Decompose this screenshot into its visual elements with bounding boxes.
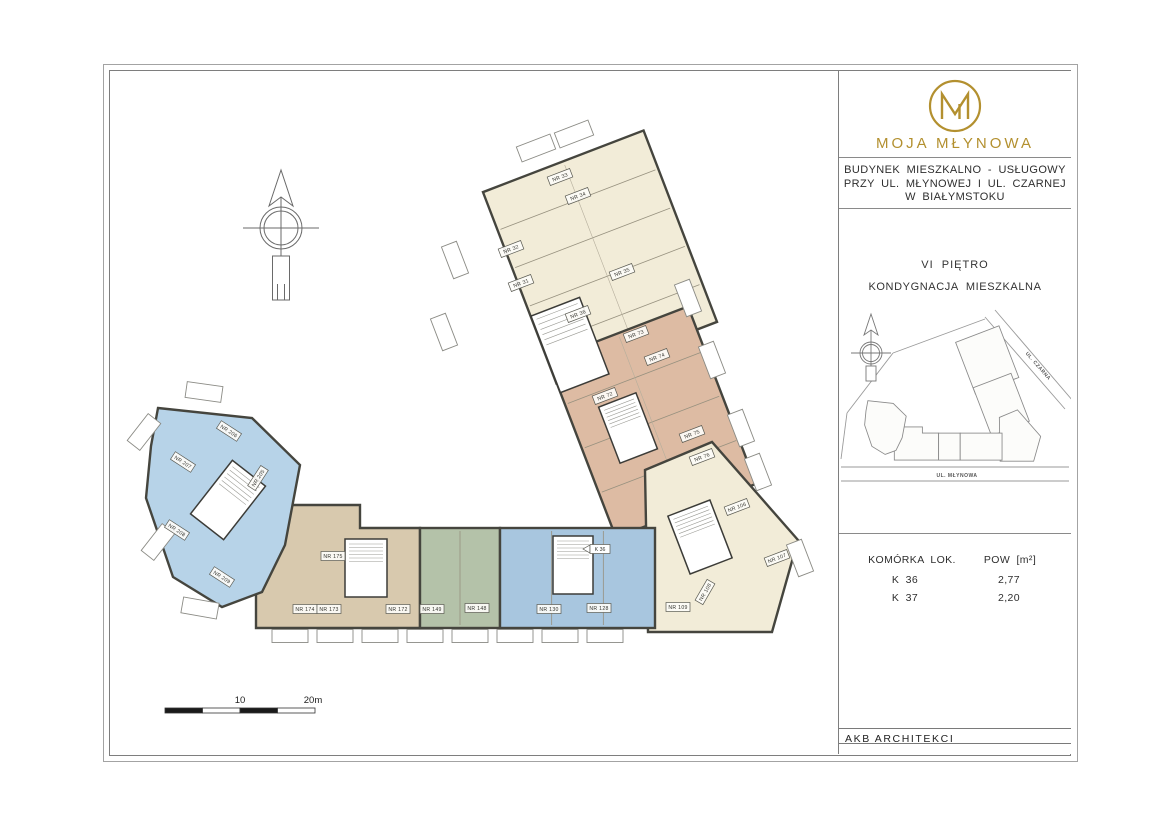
site-building-footprint xyxy=(865,326,1041,461)
project-title-line2: PRZY UL. MŁYNOWEJ I UL. CZARNEJ xyxy=(839,178,1071,192)
site-north-arrow xyxy=(851,314,891,381)
drawing-sheet: NR 33NR 34NR 32NR 31NR 35NR 36NR 73NR 74… xyxy=(0,0,1170,826)
storage-table-section: KOMÓRKA LOK. POW [m²] K 36 2,77 K 37 2,2… xyxy=(839,533,1071,729)
storage-row-id: K 37 xyxy=(892,592,918,604)
storage-row-area: 2,20 xyxy=(998,592,1020,604)
title-block-panel: MOJA MŁYNOWA BUDYNEK MIESZKALNO - USŁUGO… xyxy=(838,71,1071,754)
wing-south-blue xyxy=(960,433,1002,460)
storage-table-header-pow: POW [m²] xyxy=(984,554,1036,566)
brand-name: MOJA MŁYNOWA xyxy=(839,135,1071,152)
project-title-box: BUDYNEK MIESZKALNO - USŁUGOWY PRZY UL. M… xyxy=(839,157,1071,209)
logo-section: MOJA MŁYNOWA xyxy=(839,71,1071,157)
logo-m-letter xyxy=(942,94,968,119)
floor-info-section: VI PIĘTRO KONDYGNACJA MIESZKALNA UL. CZA… xyxy=(839,209,1071,533)
project-title-line1: BUDYNEK MIESZKALNO - USŁUGOWY xyxy=(839,164,1071,178)
storage-row-area: 2,77 xyxy=(998,574,1020,586)
wing-south-green xyxy=(939,433,961,460)
logo-circle xyxy=(930,81,980,131)
floor-title: VI PIĘTRO xyxy=(839,259,1071,271)
project-title-line3: W BIAŁYMSTOKU xyxy=(839,191,1071,205)
street-label-mlynowa: UL. MŁYNOWA xyxy=(936,473,977,479)
wing-corner xyxy=(999,410,1040,461)
architect-strip: AKB ARCHITEKCI xyxy=(839,728,1071,744)
site-location-map: UL. CZARNAUL. MŁYNOWA xyxy=(839,309,1071,524)
floor-subtitle: KONDYGNACJA MIESZKALNA xyxy=(839,281,1071,293)
storage-row-id: K 36 xyxy=(892,574,918,586)
architect-name: AKB ARCHITEKCI xyxy=(839,733,954,745)
brand-logo-monogram xyxy=(927,78,983,134)
storage-table-header-komorka: KOMÓRKA LOK. xyxy=(868,554,956,566)
